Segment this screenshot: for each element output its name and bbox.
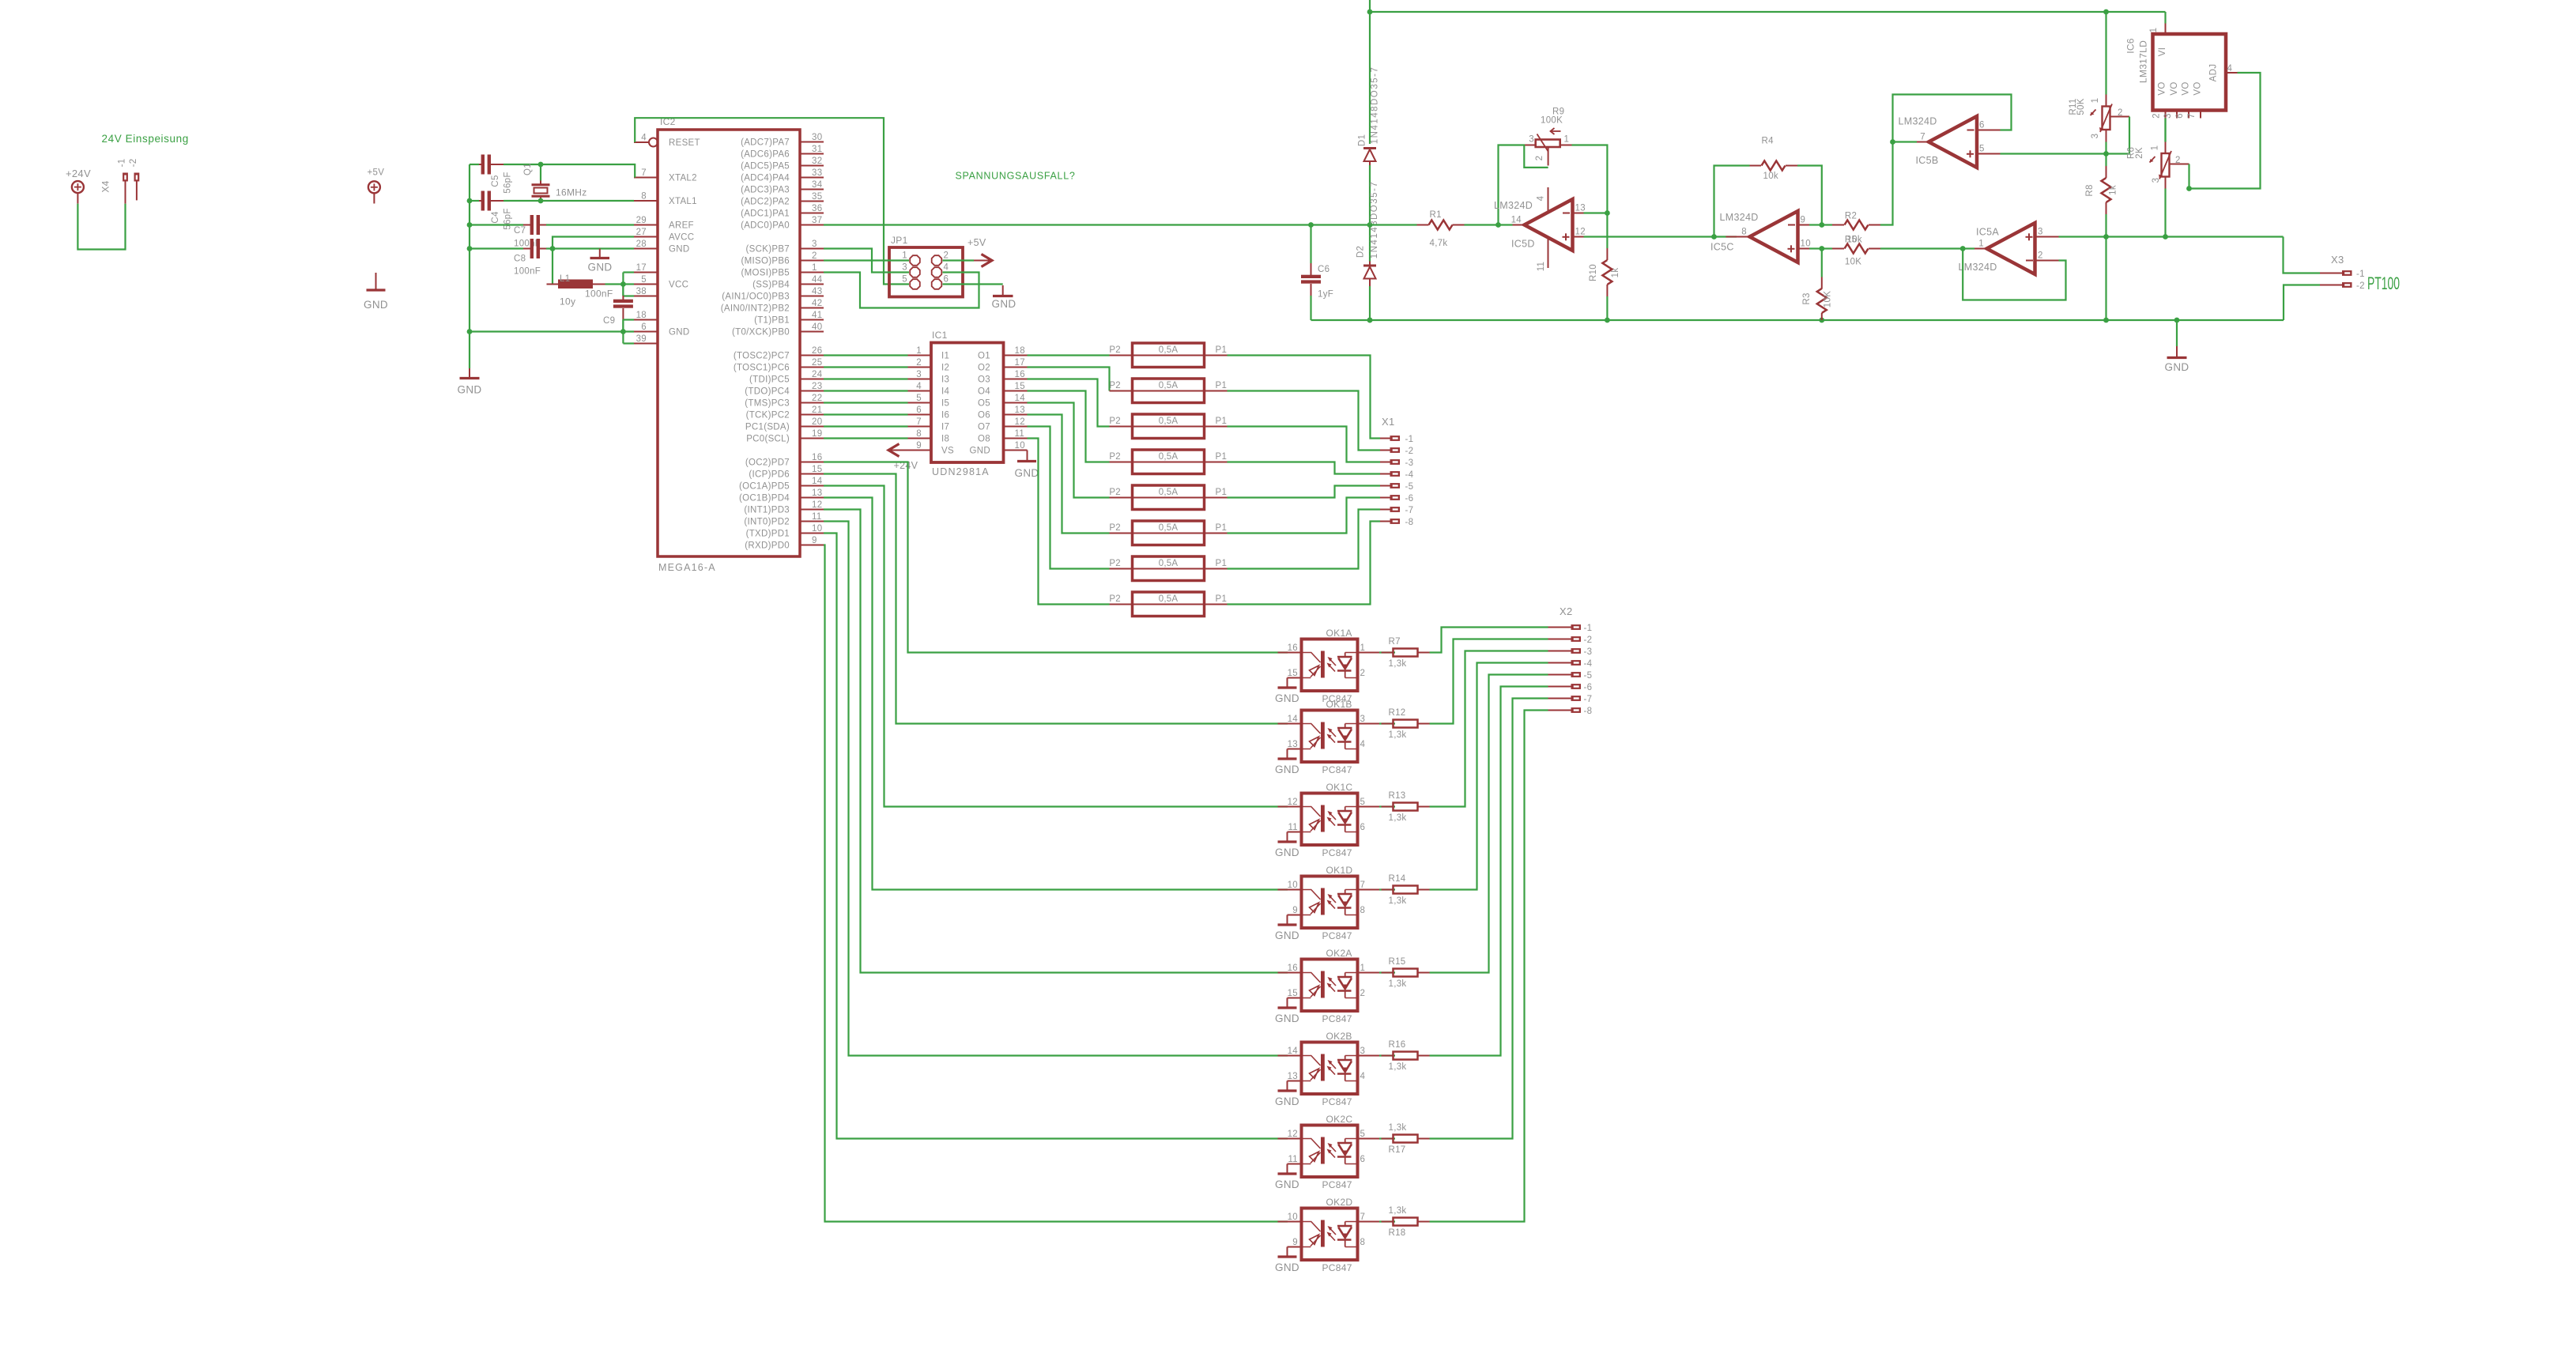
svg-text:12: 12: [1288, 798, 1298, 807]
svg-text:2: 2: [2152, 113, 2162, 119]
svg-text:P1: P1: [1216, 345, 1228, 355]
svg-text:3: 3: [916, 370, 922, 379]
svg-text:LM324D: LM324D: [1720, 212, 1759, 223]
svg-text:9: 9: [916, 441, 922, 451]
svg-text:3: 3: [2091, 134, 2100, 139]
svg-text:XTAL2: XTAL2: [669, 174, 697, 183]
svg-text:15: 15: [812, 465, 822, 474]
svg-text:PT100: PT100: [2367, 273, 2400, 293]
svg-text:P2: P2: [1109, 594, 1121, 604]
svg-text:2: 2: [812, 251, 817, 261]
svg-text:(ADC5)PA5: (ADC5)PA5: [741, 162, 790, 172]
svg-text:(OC1A)PD5: (OC1A)PD5: [739, 482, 790, 492]
svg-text:4: 4: [2227, 64, 2233, 74]
svg-text:11: 11: [1288, 1155, 1298, 1164]
svg-text:4: 4: [641, 134, 647, 143]
svg-text:1: 1: [1978, 239, 1984, 249]
svg-text:LM324D: LM324D: [1494, 200, 1533, 211]
svg-text:2: 2: [1535, 156, 1544, 161]
svg-text:R3: R3: [1802, 292, 1812, 304]
svg-text:10k: 10k: [1763, 172, 1778, 181]
svg-text:2: 2: [1360, 669, 1366, 678]
svg-text:1: 1: [1564, 135, 1570, 145]
svg-text:-8: -8: [1405, 518, 1414, 527]
svg-text:7: 7: [1920, 133, 1925, 142]
svg-text:14: 14: [1015, 394, 1026, 403]
svg-text:5: 5: [916, 394, 922, 403]
svg-text:D1: D1: [1358, 134, 1367, 146]
svg-text:3: 3: [2038, 228, 2043, 237]
svg-text:R17: R17: [1389, 1145, 1406, 1155]
svg-text:(ADC3)PA3: (ADC3)PA3: [741, 186, 790, 195]
svg-text:1,3k: 1,3k: [1389, 730, 1407, 740]
svg-text:6: 6: [1360, 1155, 1366, 1164]
svg-text:1,3k: 1,3k: [1389, 979, 1407, 989]
svg-text:35: 35: [812, 192, 822, 202]
svg-text:22: 22: [812, 394, 822, 403]
svg-text:(ADC2)PA2: (ADC2)PA2: [741, 198, 790, 207]
svg-text:MEGA16-A: MEGA16-A: [658, 562, 716, 573]
svg-text:0,5A: 0,5A: [1159, 559, 1179, 568]
svg-text:X1: X1: [1382, 416, 1395, 428]
svg-text:I7: I7: [941, 423, 949, 432]
svg-text:I8: I8: [941, 435, 949, 444]
svg-text:8: 8: [1741, 228, 1747, 237]
svg-text:OK2A: OK2A: [1326, 948, 1352, 959]
svg-text:42: 42: [812, 299, 822, 308]
svg-text:1: 1: [902, 251, 907, 261]
svg-text:GND: GND: [970, 447, 990, 456]
svg-text:10: 10: [1015, 441, 1025, 451]
svg-text:0,5A: 0,5A: [1159, 594, 1179, 604]
svg-text:O6: O6: [978, 411, 990, 421]
svg-text:ADJ: ADJ: [2209, 64, 2219, 82]
svg-text:25: 25: [812, 358, 822, 368]
svg-text:4: 4: [1360, 740, 1366, 749]
svg-text:(TDI)PC5: (TDI)PC5: [749, 375, 790, 385]
svg-text:SPANNUNGSAUSFALL?: SPANNUNGSAUSFALL?: [956, 170, 1076, 181]
svg-text:1,3k: 1,3k: [1389, 659, 1407, 669]
svg-text:PC847: PC847: [1322, 1013, 1352, 1024]
svg-text:1: 1: [1360, 643, 1366, 653]
svg-text:-4: -4: [1405, 470, 1414, 480]
svg-text:P2: P2: [1109, 345, 1121, 355]
svg-text:2: 2: [1360, 989, 1366, 998]
svg-text:6: 6: [641, 322, 647, 332]
svg-text:P1: P1: [1216, 417, 1228, 426]
svg-text:XTAL1: XTAL1: [669, 197, 697, 206]
svg-text:14: 14: [1288, 1047, 1299, 1056]
svg-text:11: 11: [812, 512, 822, 522]
svg-text:PC847: PC847: [1322, 764, 1352, 775]
svg-text:10: 10: [1288, 1212, 1298, 1222]
svg-text:-1: -1: [2356, 270, 2365, 279]
svg-text:O2: O2: [978, 364, 990, 373]
svg-text:GND: GND: [1275, 692, 1299, 704]
svg-text:1N4148DO35-7: 1N4148DO35-7: [1371, 66, 1380, 145]
svg-text:VO: VO: [2170, 81, 2179, 95]
svg-text:(T1)PB1: (T1)PB1: [754, 316, 790, 326]
svg-text:34: 34: [812, 180, 823, 190]
svg-text:12: 12: [1015, 417, 1025, 427]
svg-text:-1: -1: [1584, 624, 1593, 633]
svg-text:P2: P2: [1109, 523, 1121, 533]
svg-text:1,3k: 1,3k: [1389, 1123, 1407, 1133]
svg-text:(AIN0/INT2)PB2: (AIN0/INT2)PB2: [721, 304, 790, 314]
svg-text:6: 6: [944, 275, 949, 285]
svg-text:-2: -2: [2356, 281, 2365, 291]
svg-text:16: 16: [1288, 643, 1298, 653]
svg-text:-8: -8: [1584, 707, 1593, 716]
svg-text:1k: 1k: [1611, 268, 1620, 278]
svg-text:21: 21: [812, 405, 822, 415]
svg-text:GND: GND: [458, 384, 482, 396]
svg-text:19: 19: [812, 429, 822, 439]
svg-text:L1: L1: [560, 274, 570, 284]
svg-text:0,5A: 0,5A: [1159, 488, 1179, 497]
svg-text:16: 16: [812, 453, 822, 462]
svg-text:23: 23: [812, 382, 822, 391]
svg-text:P1: P1: [1216, 452, 1228, 462]
svg-text:GND: GND: [1015, 467, 1039, 479]
svg-text:VS: VS: [941, 447, 954, 456]
svg-text:0,5A: 0,5A: [1159, 523, 1179, 533]
svg-text:5: 5: [641, 275, 647, 285]
svg-text:17: 17: [636, 263, 647, 273]
svg-text:(SCK)PB7: (SCK)PB7: [746, 245, 790, 255]
svg-text:3: 3: [2163, 113, 2173, 119]
svg-text:IC5C: IC5C: [1710, 242, 1734, 253]
svg-text:-3: -3: [1584, 647, 1593, 657]
svg-text:14: 14: [1288, 715, 1299, 724]
svg-text:(T0/XCK)PB0: (T0/XCK)PB0: [732, 328, 790, 338]
svg-text:(TOSC2)PC7: (TOSC2)PC7: [734, 352, 790, 361]
svg-text:0,5A: 0,5A: [1159, 417, 1179, 426]
svg-text:GND: GND: [1275, 1013, 1299, 1024]
svg-text:IC1: IC1: [932, 330, 948, 341]
svg-text:1k: 1k: [2109, 185, 2118, 195]
svg-text:D2: D2: [1356, 246, 1366, 258]
svg-text:(TCK)PC2: (TCK)PC2: [746, 411, 790, 421]
svg-text:R18: R18: [1389, 1228, 1406, 1238]
svg-text:I1: I1: [941, 352, 949, 361]
svg-text:P2: P2: [1109, 381, 1121, 390]
svg-text:OK2D: OK2D: [1326, 1197, 1353, 1208]
svg-text:RESET: RESET: [669, 138, 700, 148]
svg-text:O1: O1: [978, 352, 990, 361]
svg-text:3: 3: [812, 239, 817, 249]
svg-text:I3: I3: [941, 375, 949, 385]
svg-text:1: 1: [812, 263, 817, 273]
svg-text:13: 13: [1288, 740, 1298, 749]
svg-text:R14: R14: [1389, 874, 1406, 884]
svg-text:(MISO)PB6: (MISO)PB6: [741, 257, 790, 266]
svg-text:38: 38: [636, 287, 647, 296]
svg-text:I5: I5: [941, 399, 949, 409]
svg-text:8: 8: [1360, 906, 1366, 915]
svg-text:2: 2: [944, 251, 949, 261]
svg-text:+24V: +24V: [66, 168, 91, 179]
svg-text:1: 1: [2151, 145, 2160, 151]
svg-text:3: 3: [2152, 178, 2161, 183]
svg-text:P1: P1: [1216, 523, 1228, 533]
svg-text:44: 44: [812, 275, 823, 285]
svg-text:Q1: Q1: [523, 163, 533, 175]
svg-text:6: 6: [1979, 121, 1985, 130]
svg-text:GND: GND: [588, 262, 613, 273]
svg-text:-1: -1: [1405, 435, 1414, 444]
svg-text:43: 43: [812, 287, 822, 296]
svg-text:18: 18: [1015, 346, 1025, 356]
svg-text:29: 29: [636, 216, 647, 225]
svg-text:X2: X2: [1560, 605, 1573, 617]
svg-text:-2: -2: [1405, 447, 1414, 456]
svg-text:5: 5: [1360, 798, 1366, 807]
svg-text:P1: P1: [1216, 488, 1228, 497]
svg-text:6: 6: [916, 405, 922, 415]
svg-text:7: 7: [1360, 881, 1366, 890]
svg-text:7: 7: [1360, 1212, 1366, 1222]
svg-text:56pF: 56pF: [504, 172, 513, 193]
svg-text:30: 30: [812, 133, 822, 142]
svg-text:2: 2: [2118, 108, 2123, 118]
svg-text:10: 10: [812, 524, 822, 534]
svg-text:0,5A: 0,5A: [1159, 452, 1179, 462]
svg-text:4: 4: [1360, 1072, 1366, 1081]
svg-text:+5V: +5V: [368, 168, 385, 178]
svg-text:1,3k: 1,3k: [1389, 896, 1407, 906]
svg-text:-6: -6: [1405, 494, 1414, 503]
svg-text:5: 5: [1360, 1130, 1366, 1139]
svg-text:11: 11: [1288, 823, 1298, 832]
svg-text:40: 40: [812, 322, 822, 332]
svg-text:0,5A: 0,5A: [1159, 345, 1179, 355]
svg-text:(ADC0)PA0: (ADC0)PA0: [741, 221, 790, 231]
svg-text:GND: GND: [1275, 1262, 1299, 1273]
svg-text:-7: -7: [1405, 506, 1414, 515]
svg-text:C4: C4: [491, 211, 500, 224]
svg-text:9: 9: [1801, 216, 1806, 225]
svg-text:14: 14: [812, 477, 823, 486]
svg-text:(INT0)PD2: (INT0)PD2: [744, 518, 790, 527]
svg-text:1: 1: [2149, 28, 2159, 33]
svg-text:5: 5: [1979, 145, 1985, 154]
svg-text:10: 10: [1801, 239, 1811, 249]
svg-text:16MHz: 16MHz: [556, 187, 587, 198]
svg-text:GND: GND: [364, 299, 388, 311]
svg-text:50K: 50K: [2076, 98, 2086, 115]
svg-text:13: 13: [812, 488, 822, 498]
svg-text:(ADC4)PA4: (ADC4)PA4: [741, 174, 790, 183]
svg-text:100nF: 100nF: [514, 267, 541, 277]
svg-text:8: 8: [1360, 1238, 1366, 1247]
svg-text:1yF: 1yF: [1318, 290, 1333, 300]
svg-text:9: 9: [1292, 906, 1298, 915]
svg-text:3: 3: [1529, 135, 1534, 145]
svg-text:P1: P1: [1216, 381, 1228, 390]
svg-text:(TMS)PC3: (TMS)PC3: [745, 399, 790, 409]
svg-text:O5: O5: [978, 399, 990, 409]
svg-text:(ADC6)PA6: (ADC6)PA6: [741, 150, 790, 160]
svg-text:2: 2: [2038, 251, 2043, 261]
svg-text:O4: O4: [978, 387, 990, 397]
svg-text:C9: C9: [603, 316, 615, 326]
svg-text:-2: -2: [1584, 635, 1593, 645]
svg-text:C6: C6: [1318, 265, 1329, 274]
svg-text:(ADC7)PA7: (ADC7)PA7: [741, 138, 790, 148]
svg-text:-3: -3: [1405, 458, 1414, 468]
svg-text:GND: GND: [669, 245, 689, 255]
svg-text:OK2C: OK2C: [1326, 1114, 1353, 1125]
svg-text:R10: R10: [1589, 264, 1598, 281]
svg-text:-2: -2: [129, 159, 138, 168]
svg-text:PC847: PC847: [1322, 847, 1352, 858]
svg-text:PC847: PC847: [1322, 1179, 1352, 1190]
svg-text:18: 18: [636, 311, 647, 320]
svg-text:VCC: VCC: [669, 281, 688, 290]
svg-text:8: 8: [916, 429, 922, 439]
svg-text:7: 7: [641, 168, 647, 178]
svg-text:OK1C: OK1C: [1326, 782, 1353, 793]
svg-text:10: 10: [1288, 881, 1298, 890]
svg-text:2: 2: [2175, 156, 2181, 165]
svg-text:GND: GND: [1275, 847, 1299, 858]
svg-text:(TDO)PC4: (TDO)PC4: [745, 387, 790, 397]
svg-text:(INT1)PD3: (INT1)PD3: [744, 506, 790, 515]
svg-text:GND: GND: [1275, 1096, 1299, 1107]
svg-text:R16: R16: [1389, 1040, 1406, 1050]
svg-text:I2: I2: [941, 364, 949, 373]
svg-text:LM324D: LM324D: [1959, 262, 1997, 273]
svg-text:39: 39: [636, 334, 647, 344]
svg-text:56pF: 56pF: [504, 208, 513, 229]
svg-text:IC5B: IC5B: [1916, 155, 1939, 166]
svg-text:LM317LD: LM317LD: [2138, 40, 2149, 83]
svg-text:GND: GND: [992, 298, 1016, 310]
svg-text:R8: R8: [2085, 184, 2095, 196]
svg-text:5: 5: [902, 275, 907, 285]
svg-text:R4: R4: [1762, 137, 1775, 146]
svg-text:P2: P2: [1109, 452, 1121, 462]
svg-text:-7: -7: [1584, 695, 1593, 704]
svg-text:PC847: PC847: [1322, 1262, 1352, 1273]
svg-text:(TOSC1)PC6: (TOSC1)PC6: [734, 364, 790, 373]
svg-text:100nF: 100nF: [585, 289, 613, 300]
svg-text:11: 11: [1537, 262, 1546, 272]
svg-text:PC1(SDA): PC1(SDA): [745, 423, 790, 432]
svg-text:(AIN1/OC0)PB3: (AIN1/OC0)PB3: [722, 292, 790, 302]
svg-text:17: 17: [1015, 358, 1025, 368]
svg-text:12: 12: [1575, 228, 1586, 237]
svg-text:12: 12: [1288, 1130, 1298, 1139]
svg-text:C8: C8: [514, 255, 526, 264]
svg-text:2K: 2K: [2135, 147, 2144, 159]
svg-text:GND: GND: [1275, 930, 1299, 941]
svg-text:24: 24: [812, 370, 823, 379]
svg-text:1: 1: [1360, 964, 1366, 973]
svg-text:VO: VO: [2193, 81, 2203, 95]
svg-text:R13: R13: [1389, 791, 1406, 801]
svg-text:(ADC1)PA1: (ADC1)PA1: [741, 209, 790, 219]
svg-text:41: 41: [812, 311, 822, 320]
svg-text:C7: C7: [514, 226, 526, 236]
svg-text:7: 7: [916, 417, 922, 427]
svg-text:3: 3: [1360, 1047, 1366, 1056]
svg-text:9: 9: [812, 536, 817, 545]
svg-text:12: 12: [812, 500, 822, 510]
svg-text:1: 1: [2091, 98, 2100, 104]
svg-text:1,3k: 1,3k: [1389, 1206, 1407, 1216]
svg-text:15: 15: [1288, 989, 1298, 998]
svg-text:P2: P2: [1109, 417, 1121, 426]
svg-text:GND: GND: [1275, 764, 1299, 775]
svg-text:15: 15: [1288, 669, 1298, 678]
svg-text:37: 37: [812, 216, 822, 225]
svg-text:OK1B: OK1B: [1326, 699, 1352, 710]
svg-text:(TXD)PD1: (TXD)PD1: [746, 530, 790, 539]
svg-text:13: 13: [1288, 1072, 1298, 1081]
svg-text:LM324D: LM324D: [1899, 116, 1937, 127]
svg-text:6: 6: [1360, 823, 1366, 832]
svg-text:R7: R7: [1389, 637, 1401, 647]
svg-text:10K: 10K: [1845, 258, 1861, 267]
svg-text:16: 16: [1015, 370, 1025, 379]
svg-text:28: 28: [636, 239, 647, 249]
svg-text:7: 7: [2187, 113, 2197, 119]
svg-text:IC5D: IC5D: [1511, 239, 1535, 250]
svg-text:VI: VI: [2158, 47, 2167, 56]
svg-text:-1: -1: [118, 159, 127, 168]
svg-text:VO: VO: [2158, 81, 2167, 95]
svg-text:PC847: PC847: [1322, 930, 1352, 941]
svg-text:OK2B: OK2B: [1326, 1031, 1352, 1042]
svg-text:16: 16: [1288, 964, 1298, 973]
svg-text:13: 13: [1015, 405, 1025, 415]
svg-text:0,5A: 0,5A: [1159, 381, 1179, 390]
svg-text:R1: R1: [1430, 210, 1442, 220]
svg-text:(OC2)PD7: (OC2)PD7: [745, 458, 790, 468]
svg-text:OK1A: OK1A: [1326, 628, 1352, 639]
svg-text:11: 11: [1015, 429, 1025, 439]
svg-text:VO: VO: [2182, 81, 2191, 95]
svg-text:R15: R15: [1389, 957, 1406, 967]
svg-text:P2: P2: [1109, 488, 1121, 497]
svg-text:100K: 100K: [1541, 116, 1563, 126]
svg-text:UDN2981A: UDN2981A: [932, 466, 990, 477]
svg-text:PC0(SCL): PC0(SCL): [746, 435, 790, 444]
svg-text:(RXD)PD0: (RXD)PD0: [745, 541, 790, 551]
svg-text:1,3k: 1,3k: [1389, 813, 1407, 823]
svg-text:36: 36: [812, 204, 822, 213]
svg-text:9: 9: [1292, 1238, 1298, 1247]
svg-text:6: 6: [2175, 113, 2185, 119]
svg-text:32: 32: [812, 157, 822, 166]
svg-text:R12: R12: [1389, 708, 1406, 718]
svg-text:3: 3: [902, 263, 907, 273]
svg-text:-5: -5: [1584, 671, 1593, 681]
svg-text:3: 3: [1360, 715, 1366, 724]
svg-text:I4: I4: [941, 387, 949, 397]
svg-text:4: 4: [1537, 195, 1546, 201]
svg-text:IC5A: IC5A: [1976, 227, 1999, 238]
svg-text:(MOSI)PB5: (MOSI)PB5: [741, 269, 790, 278]
svg-text:X3: X3: [2331, 254, 2344, 266]
svg-text:(ICP)PD6: (ICP)PD6: [749, 470, 790, 480]
svg-text:20: 20: [812, 417, 822, 427]
svg-text:PC847: PC847: [1322, 1096, 1352, 1107]
svg-text:31: 31: [812, 145, 822, 154]
svg-text:JP1: JP1: [891, 235, 908, 246]
